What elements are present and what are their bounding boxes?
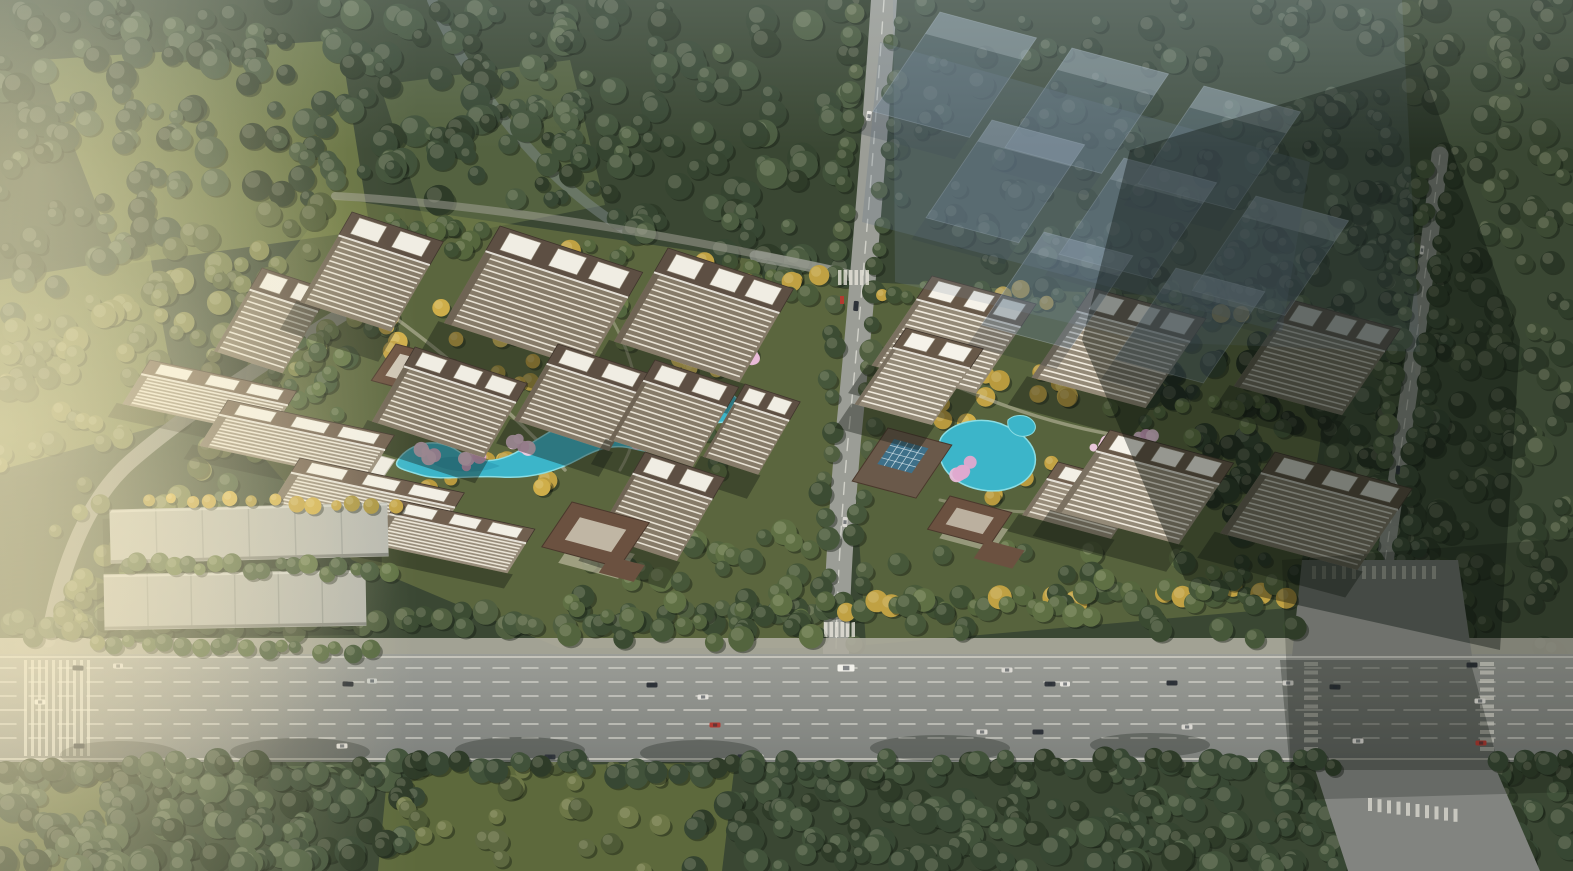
shade-overlay-corner — [1282, 538, 1573, 800]
vehicle — [1060, 682, 1070, 687]
road-sign-red — [840, 296, 844, 304]
vehicle — [1033, 730, 1044, 735]
vehicle — [853, 301, 859, 311]
aerial-site-rendering — [0, 0, 1573, 871]
vehicle — [710, 723, 721, 728]
vehicle — [977, 730, 988, 735]
vehicle — [697, 694, 708, 699]
vehicle — [842, 517, 848, 527]
vehicle — [1045, 682, 1056, 687]
vehicle — [647, 683, 658, 688]
vehicle — [1167, 681, 1178, 686]
vehicle — [1002, 668, 1013, 673]
vehicle — [1182, 725, 1193, 730]
rendering-canvas — [0, 0, 1573, 871]
haze-band-top — [0, 0, 1573, 150]
vehicle — [838, 665, 855, 672]
